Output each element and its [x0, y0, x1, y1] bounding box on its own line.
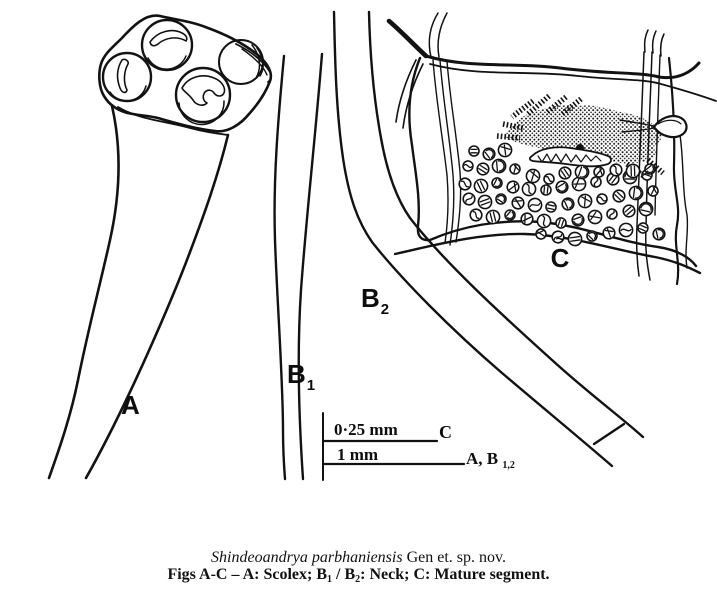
neck-b1 [275, 54, 322, 479]
figure-caption: Shindeoandrya parbhaniensis Gen et. sp. … [0, 549, 717, 586]
caption-species-line: Shindeoandrya parbhaniensis Gen et. sp. … [0, 549, 717, 566]
scale-025mm-ref: C [439, 422, 452, 443]
figure-plate: A B1 B2 ~ C 0·25 mm C 1 mm A, B 1,2 Shin… [0, 0, 717, 609]
caption-species-rest: Gen et. sp. nov. [403, 549, 506, 566]
scale-1mm-label: 1 mm [337, 445, 378, 465]
label-a-text: A [121, 390, 140, 420]
scale-025mm-label: 0·25 mm [334, 420, 398, 440]
label-c: ~ C [545, 234, 575, 271]
scale-1mm-ref: A, B 1,2 [466, 449, 515, 469]
label-a: A [121, 392, 140, 419]
caption-species-name: Shindeoandrya parbhaniensis [211, 549, 403, 566]
scolex-a [49, 16, 271, 478]
label-b2: B2 [361, 285, 388, 311]
caption-figs-line: Figs A-C – A: Scolex; B1 / B2: Neck; C: … [0, 566, 717, 586]
label-b1: B1 [287, 361, 314, 387]
